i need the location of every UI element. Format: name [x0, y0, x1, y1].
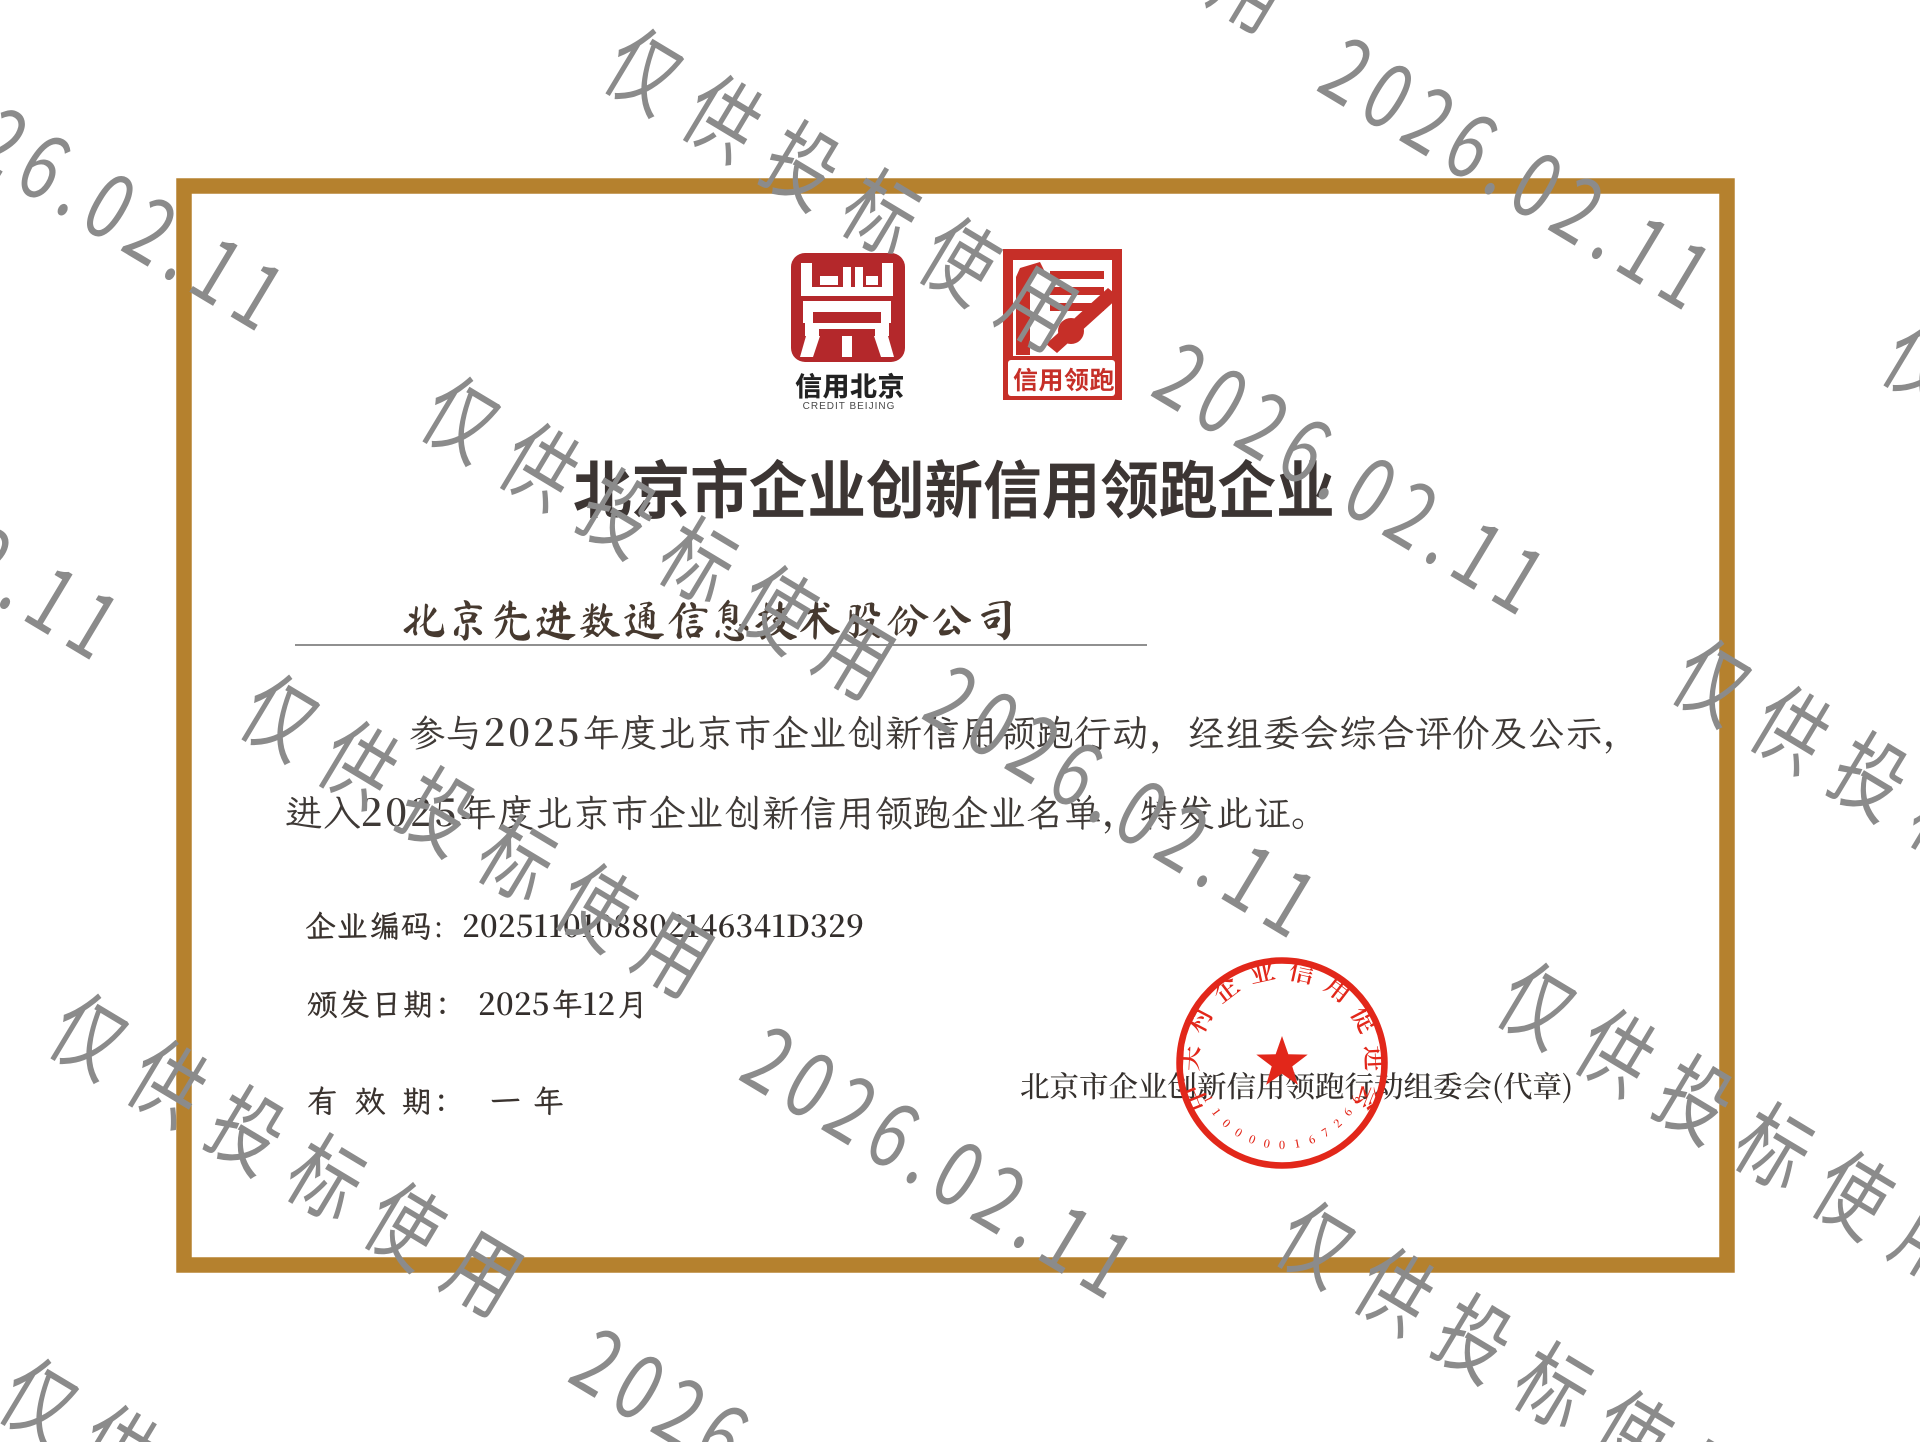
svg-text:CREDIT BEIJING: CREDIT BEIJING — [803, 401, 896, 412]
